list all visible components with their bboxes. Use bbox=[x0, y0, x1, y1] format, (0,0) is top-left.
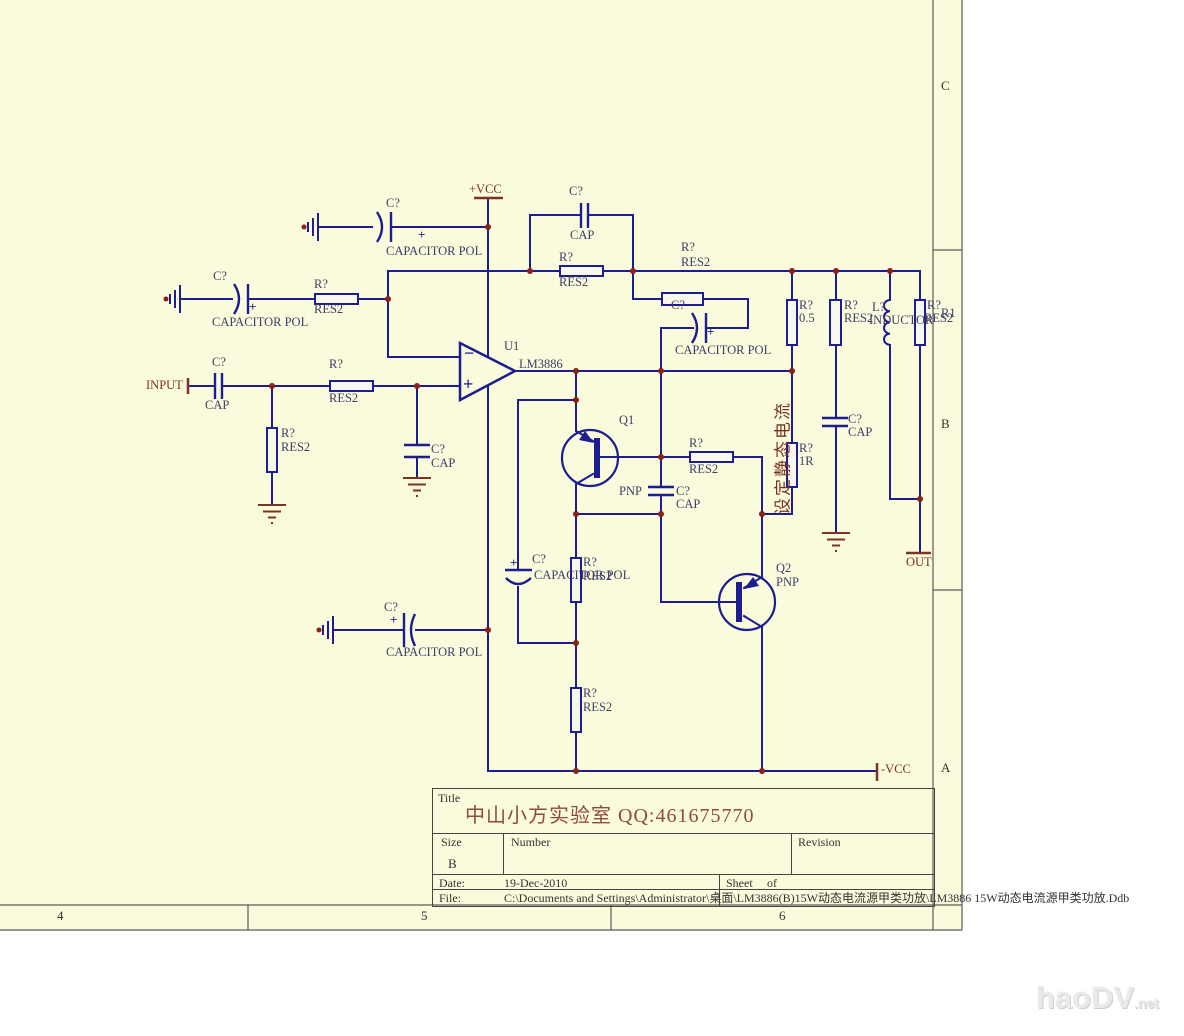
sheet-label: Sheet bbox=[726, 877, 753, 889]
haodv-watermark: haoDV.net bbox=[1036, 980, 1159, 1016]
of-label: of bbox=[767, 877, 777, 889]
title-block-line bbox=[433, 874, 934, 875]
date-label: Date: bbox=[439, 877, 465, 889]
title-block: Title 中山小方实验室 QQ:461675770 Size B Number… bbox=[432, 788, 935, 907]
watermark-text: haoDV bbox=[1036, 980, 1134, 1015]
title-block-line bbox=[791, 833, 792, 874]
number-label: Number bbox=[511, 836, 550, 848]
file-path: C:\Documents and Settings\Administrator\… bbox=[504, 892, 1129, 904]
file-label: File: bbox=[439, 892, 461, 904]
sheet-title: 中山小方实验室 QQ:461675770 bbox=[465, 806, 754, 826]
watermark-suffix: .net bbox=[1134, 995, 1159, 1011]
size-value: B bbox=[448, 857, 457, 870]
size-label: Size bbox=[441, 836, 462, 848]
quiescent-current-annotation: 设定静态电流 bbox=[769, 401, 794, 515]
title-label: Title bbox=[438, 792, 460, 804]
title-block-line bbox=[433, 833, 934, 834]
schematic-sheet: C?CAPACITOR POL+VCCC?CAPR?RES2R?RES2C?CA… bbox=[0, 0, 1184, 1036]
revision-label: Revision bbox=[798, 836, 841, 848]
date-value: 19-Dec-2010 bbox=[504, 877, 567, 889]
title-block-line bbox=[503, 833, 504, 874]
